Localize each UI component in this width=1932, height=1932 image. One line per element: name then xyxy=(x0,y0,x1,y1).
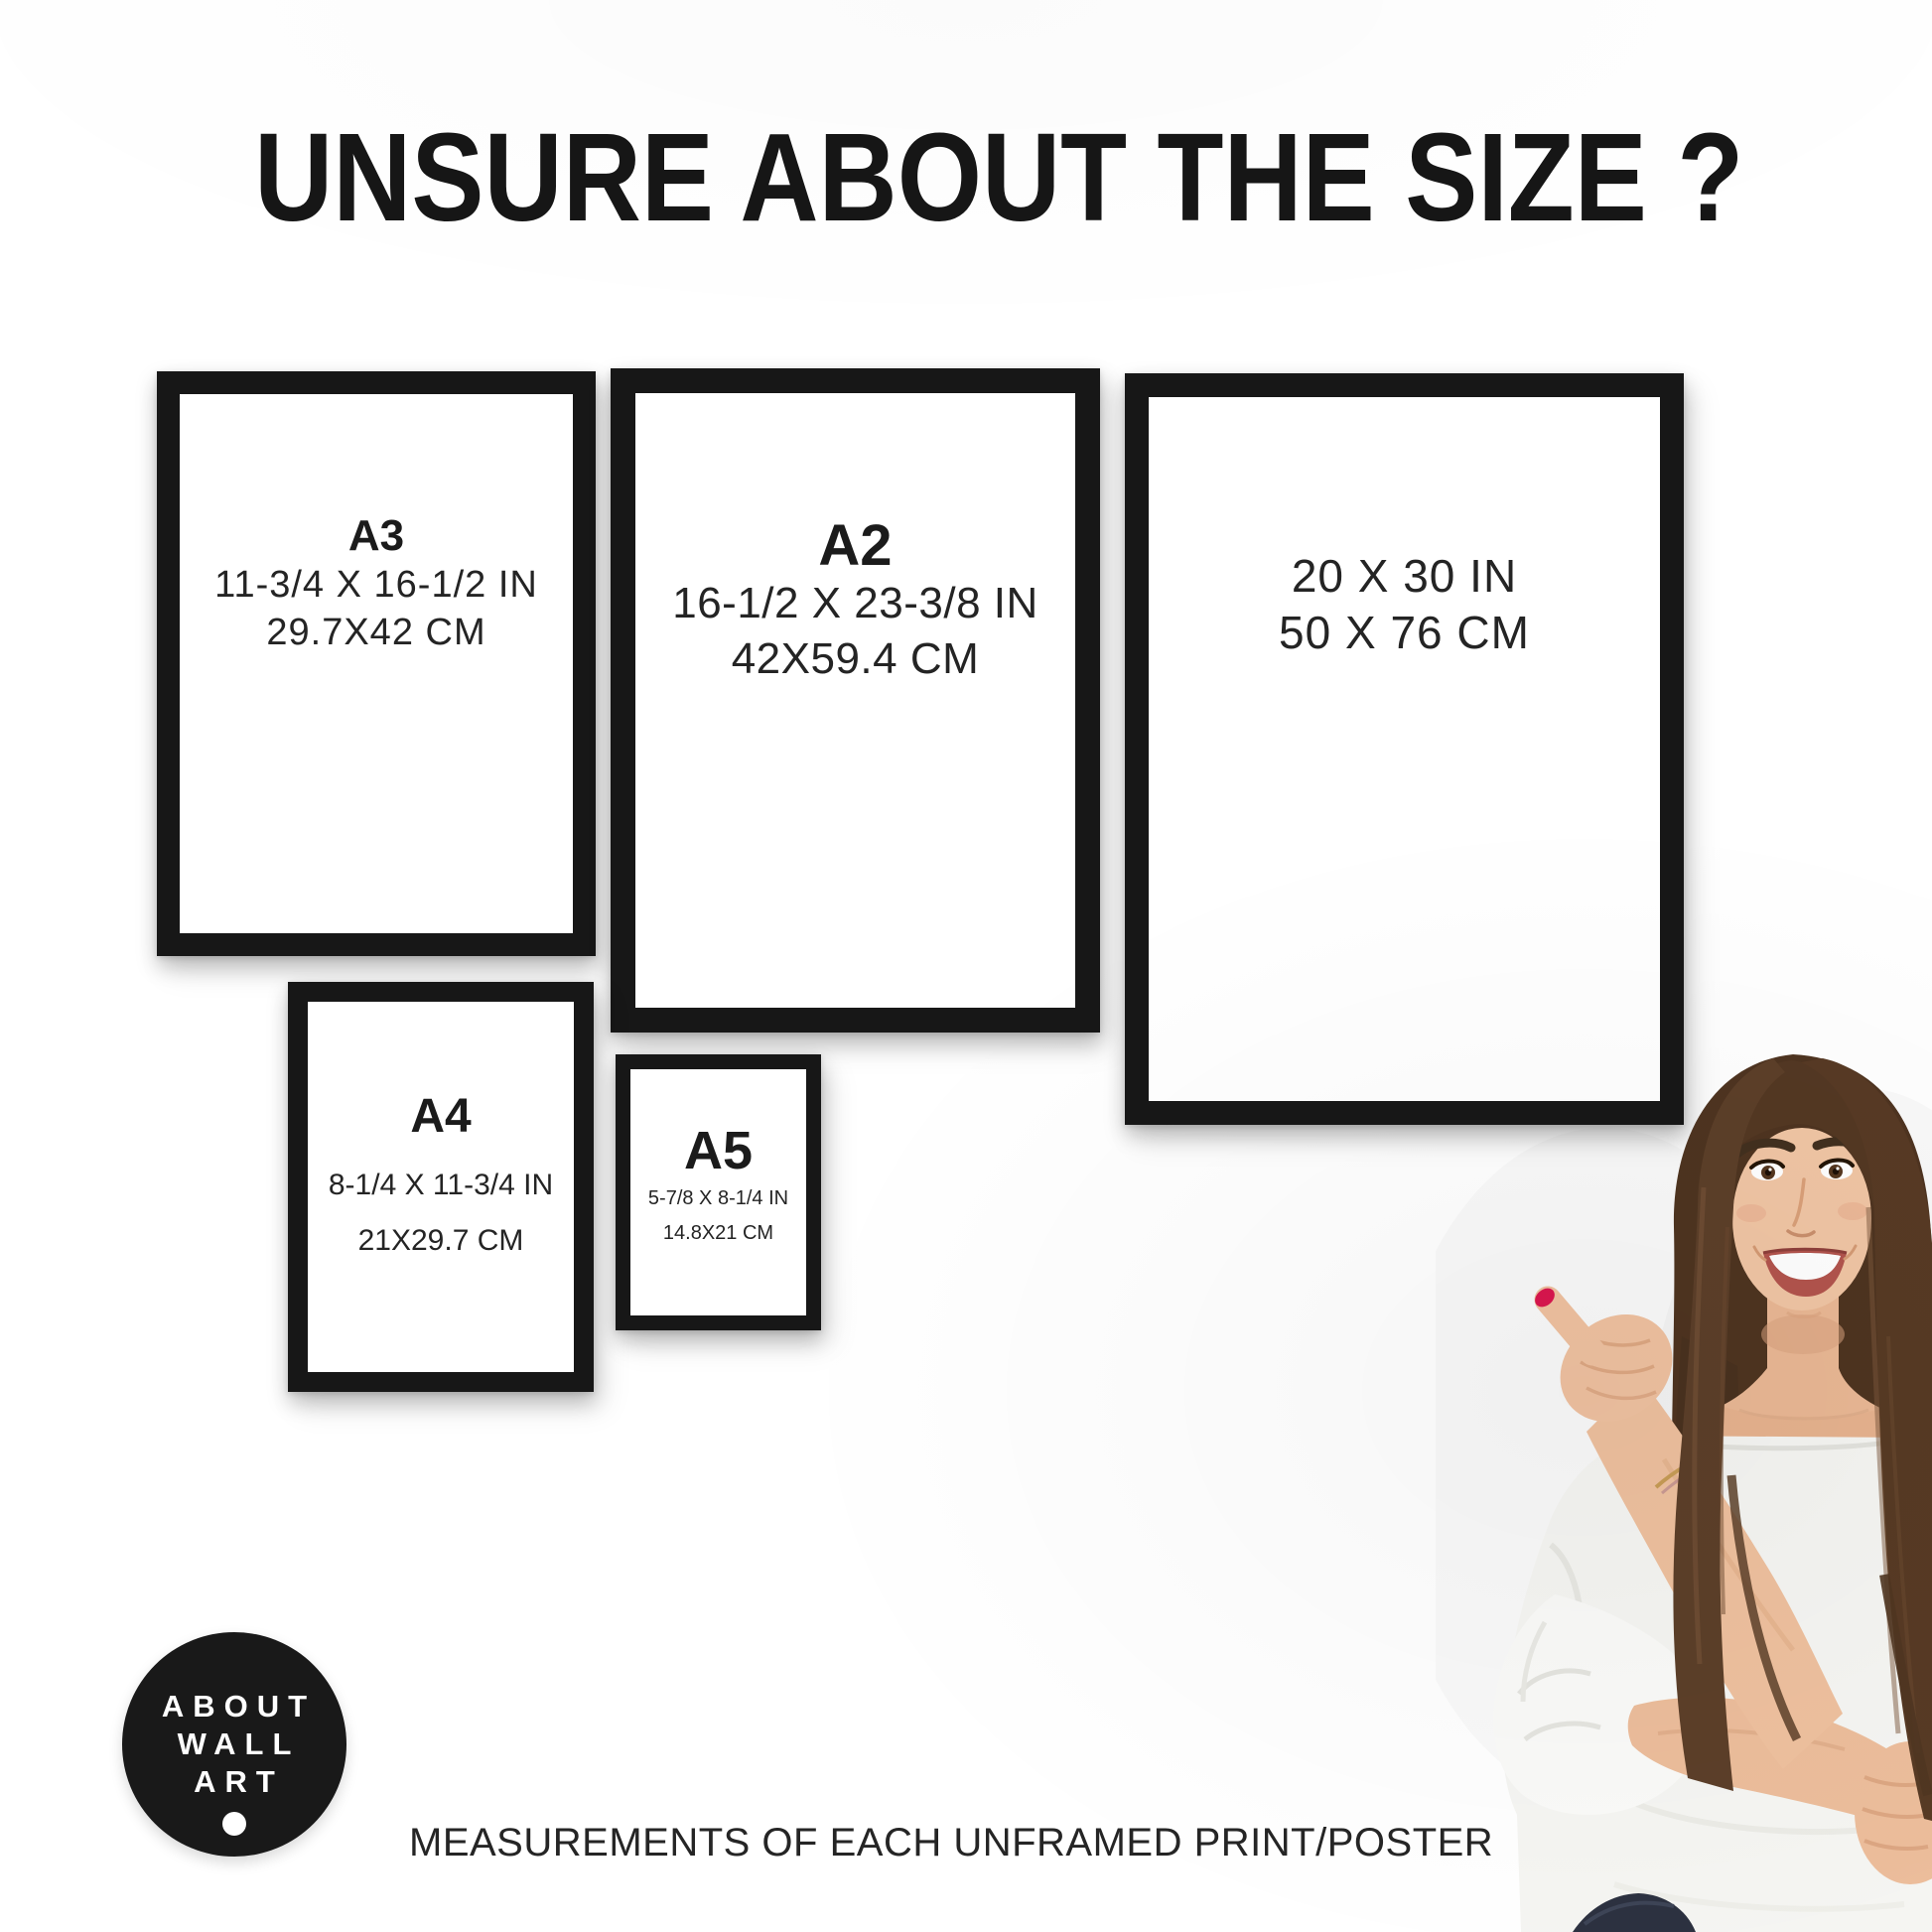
frame-20x30-size-inches: 20 X 30 IN xyxy=(1292,548,1517,605)
page-title-text: UNSURE ABOUT THE SIZE ? xyxy=(254,115,1743,240)
size-frame-20x30: 20 X 30 IN 50 X 76 CM xyxy=(1125,373,1684,1125)
frame-a3-size-inches: 11-3/4 X 16-1/2 IN xyxy=(214,561,538,609)
frame-20x30-size-cm: 50 X 76 CM xyxy=(1279,605,1530,661)
size-frame-a5: A5 5-7/8 X 8-1/4 IN 14.8X21 CM xyxy=(616,1054,821,1330)
size-guide-infographic: UNSURE ABOUT THE SIZE ? A3 11-3/4 X 16-1… xyxy=(0,0,1932,1932)
frame-a2-size-cm: 42X59.4 CM xyxy=(732,631,980,687)
frame-a5-size-cm: 14.8X21 CM xyxy=(663,1219,773,1247)
brand-logo: ABOUT WALL ART xyxy=(122,1632,346,1857)
frame-a4-label: A4 xyxy=(410,1089,471,1145)
frame-a4-size-inches: 8-1/4 X 11-3/4 IN xyxy=(329,1167,553,1204)
frame-a3-size-cm: 29.7X42 CM xyxy=(266,609,485,656)
size-frame-a2: A2 16-1/2 X 23-3/8 IN 42X59.4 CM xyxy=(611,368,1100,1033)
size-frame-a3: A3 11-3/4 X 16-1/2 IN 29.7X42 CM xyxy=(157,371,596,956)
frame-a2-size-inches: 16-1/2 X 23-3/8 IN xyxy=(672,576,1038,631)
logo-dot xyxy=(222,1812,246,1836)
frame-a5-size-inches: 5-7/8 X 8-1/4 IN xyxy=(648,1184,788,1212)
frame-a3-label: A3 xyxy=(348,511,404,561)
logo-line-art: ART xyxy=(194,1763,284,1801)
frame-a4-size-cm: 21X29.7 CM xyxy=(358,1222,524,1260)
frame-a2-label: A2 xyxy=(818,516,892,576)
footer-caption: MEASUREMENTS OF EACH UNFRAMED PRINT/POST… xyxy=(409,1821,1342,1864)
woman-pointing-photo xyxy=(1436,1038,1932,1932)
size-frame-a4: A4 8-1/4 X 11-3/4 IN 21X29.7 CM xyxy=(288,982,594,1392)
logo-line-about: ABOUT xyxy=(162,1688,316,1725)
frame-a5-label: A5 xyxy=(684,1123,753,1178)
logo-line-wall: WALL xyxy=(178,1725,301,1763)
page-title: UNSURE ABOUT THE SIZE ? xyxy=(0,115,1932,240)
